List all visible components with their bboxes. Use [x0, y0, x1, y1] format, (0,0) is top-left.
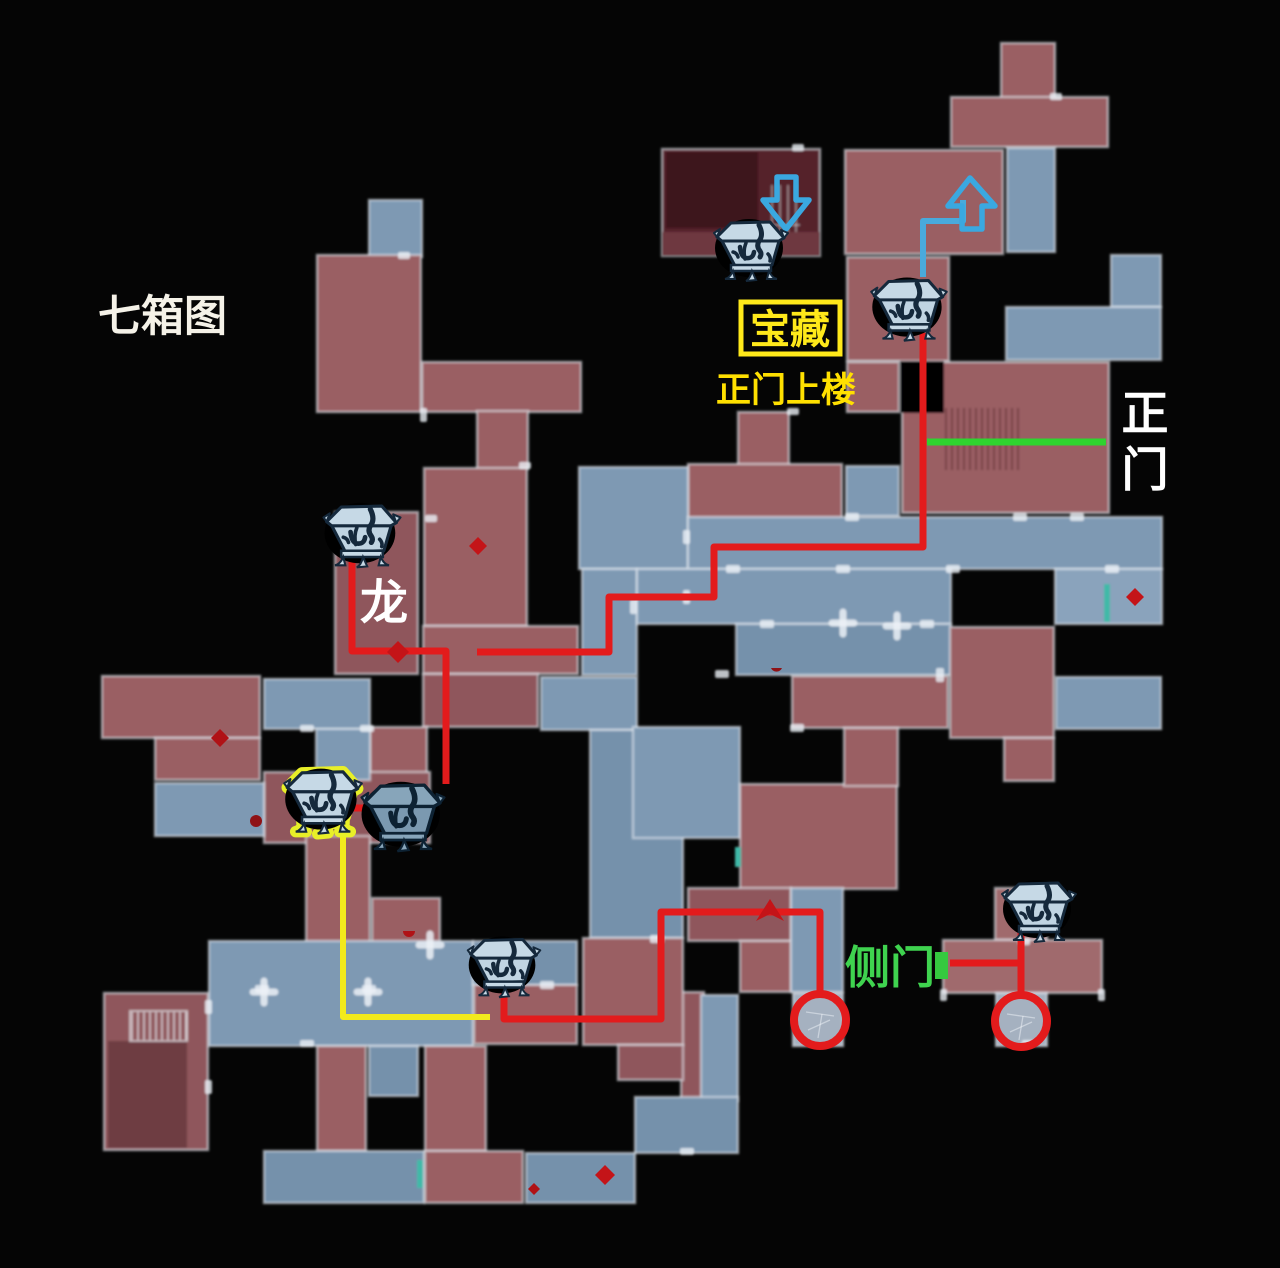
- svg-text:宝藏: 宝藏: [750, 308, 830, 352]
- svg-text:龙: 龙: [360, 577, 408, 630]
- svg-text:正: 正: [1122, 387, 1169, 440]
- svg-text:侧门: 侧门: [845, 942, 935, 993]
- svg-text:门: 门: [1122, 443, 1169, 496]
- svg-text:七箱图: 七箱图: [98, 293, 227, 341]
- svg-text:正门上楼: 正门上楼: [716, 371, 856, 410]
